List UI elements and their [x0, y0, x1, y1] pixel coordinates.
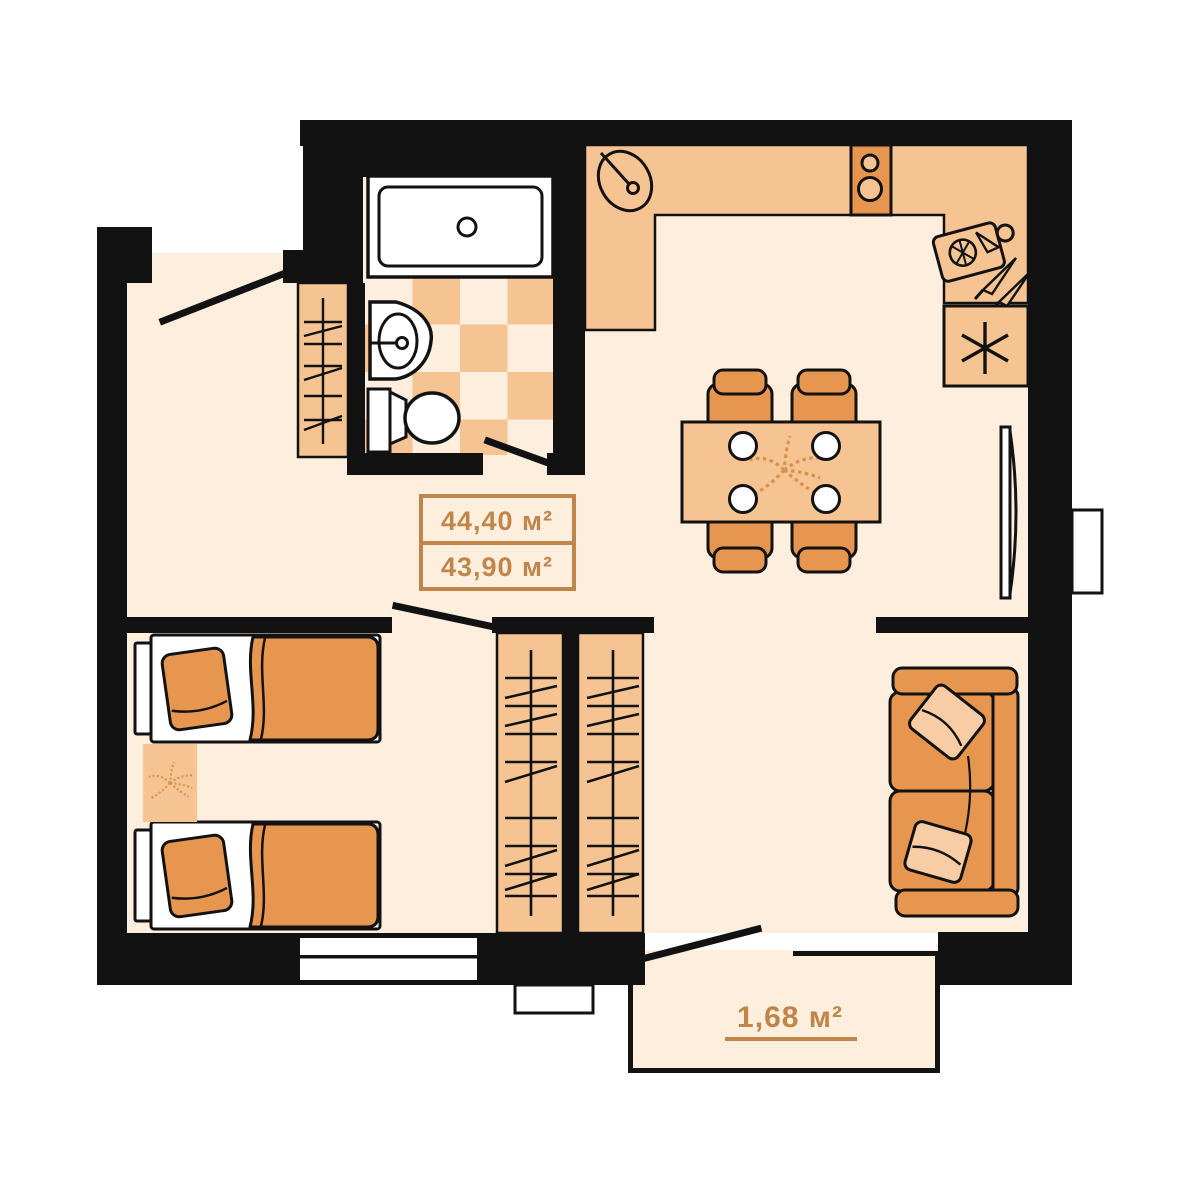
wall-bathroom-bottom	[347, 453, 483, 475]
wall-right	[1028, 120, 1072, 985]
wall-bathroom-left	[347, 283, 365, 473]
balcony-area-label: 1,68 м²	[737, 1001, 843, 1034]
floor-plan: 44,40 м² 43,90 м² 1,68 м²	[0, 0, 1200, 1200]
area-box: 44,40 м² 43,90 м²	[421, 496, 574, 589]
area-total-label: 44,40 м²	[441, 506, 553, 536]
bed-1	[135, 635, 380, 742]
wall-wardrobe-divider	[563, 633, 578, 933]
balcony-label: 1,68 м²	[725, 1001, 857, 1039]
floor-plan-drawing: 44,40 м² 43,90 м² 1,68 м²	[0, 0, 1200, 1200]
stove-icon	[851, 145, 891, 215]
wall-living-divider	[876, 617, 1028, 633]
exterior-box-bottom	[515, 985, 593, 1013]
fridge-icon	[944, 306, 1028, 386]
wall-bottom-right-block	[938, 932, 1072, 985]
wall-bedroom-top	[110, 617, 392, 633]
wall-entry-step	[283, 250, 305, 283]
bathtub-icon	[368, 176, 553, 277]
wall-top-bathroom	[363, 120, 555, 177]
wall-bathroom-column	[303, 120, 363, 283]
rug	[143, 744, 197, 822]
bed-2	[135, 822, 380, 929]
bedroom-window	[300, 938, 477, 980]
wardrobe-right	[578, 633, 643, 933]
exterior-box-right	[1072, 510, 1102, 593]
wall-bathroom-right	[553, 120, 585, 475]
wall-wardrobe-cap	[492, 617, 654, 633]
wardrobe-left	[497, 633, 563, 933]
sofa	[890, 668, 1018, 916]
wall-left	[97, 227, 127, 985]
area-living-label: 43,90 м²	[441, 552, 553, 582]
entry-wardrobe	[298, 283, 348, 457]
